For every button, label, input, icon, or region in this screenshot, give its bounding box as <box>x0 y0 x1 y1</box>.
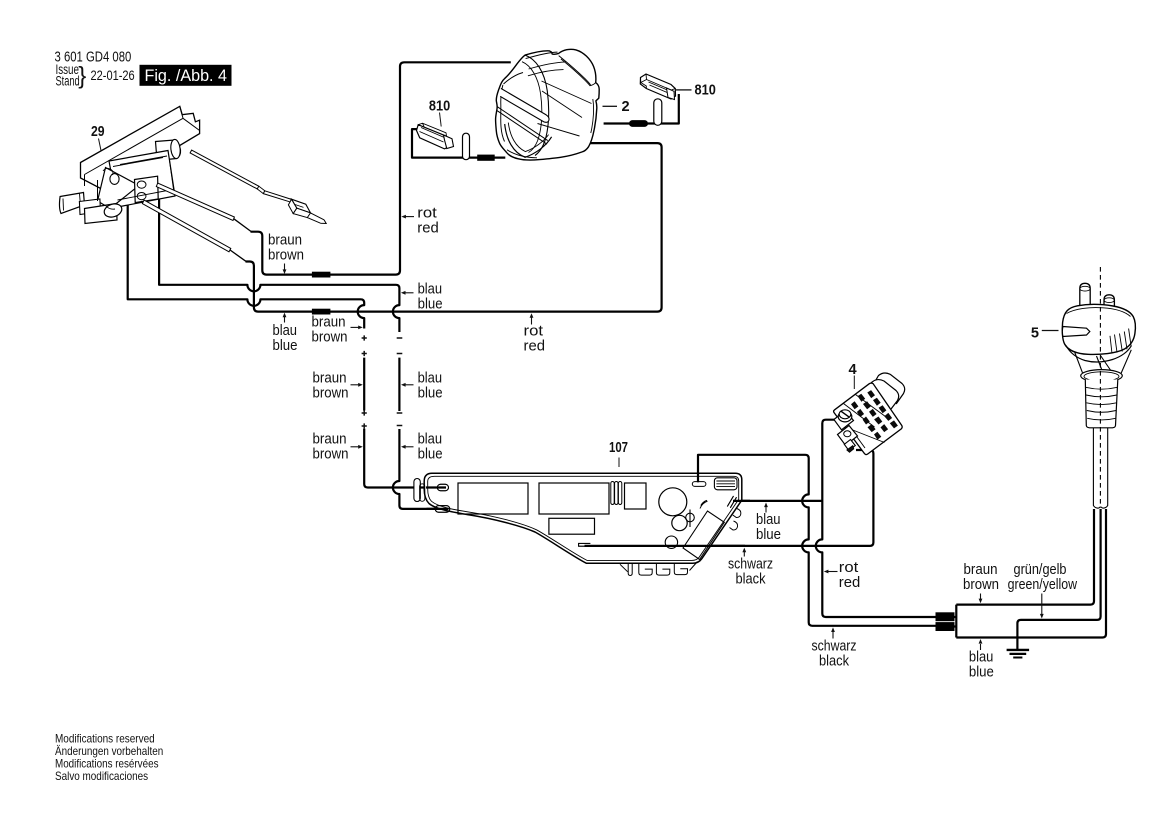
svg-text:810: 810 <box>429 99 450 115</box>
svg-text:107: 107 <box>609 440 628 456</box>
svg-text:brown: brown <box>268 248 304 264</box>
svg-text:rot: rot <box>417 206 437 222</box>
svg-text:brown: brown <box>312 330 348 346</box>
svg-text:braun: braun <box>313 432 347 448</box>
svg-text:brown: brown <box>313 447 349 463</box>
svg-text:braun: braun <box>964 562 998 578</box>
svg-text:braun: braun <box>313 371 347 387</box>
svg-text:braun: braun <box>312 315 346 331</box>
svg-text:black: black <box>819 654 850 670</box>
svg-text:red: red <box>524 339 546 355</box>
svg-text:blau: blau <box>418 282 443 298</box>
svg-text:blue: blue <box>418 297 443 313</box>
svg-text:22-01-26: 22-01-26 <box>91 68 135 83</box>
svg-text:rot: rot <box>839 560 859 576</box>
svg-text:4: 4 <box>849 362 858 378</box>
svg-text:red: red <box>417 221 439 237</box>
svg-text:schwarz: schwarz <box>728 557 773 573</box>
svg-text:blue: blue <box>969 665 994 681</box>
svg-text:5: 5 <box>1031 326 1039 342</box>
svg-text:Salvo modificaciones: Salvo modificaciones <box>55 770 148 783</box>
svg-text:brown: brown <box>313 386 349 402</box>
svg-text:Modifications reserved: Modifications reserved <box>55 733 155 746</box>
svg-text:schwarz: schwarz <box>812 639 857 655</box>
svg-text:rot: rot <box>524 324 544 340</box>
svg-text:Modifications resérvées: Modifications resérvées <box>55 758 159 771</box>
svg-text:blau: blau <box>756 512 781 528</box>
svg-text:blue: blue <box>418 447 443 463</box>
svg-text:blue: blue <box>756 527 781 543</box>
svg-text:blue: blue <box>273 338 298 354</box>
svg-text:}: } <box>78 63 86 90</box>
svg-text:black: black <box>736 572 767 588</box>
svg-text:red: red <box>839 575 861 591</box>
svg-text:Stand: Stand <box>56 74 80 89</box>
svg-text:green/yellow: green/yellow <box>1008 577 1078 593</box>
svg-text:blau: blau <box>273 323 298 339</box>
svg-text:blue: blue <box>418 386 443 402</box>
svg-text:braun: braun <box>268 233 302 249</box>
svg-text:Änderungen vorbehalten: Änderungen vorbehalten <box>55 745 163 758</box>
svg-text:29: 29 <box>91 124 105 140</box>
svg-text:blau: blau <box>418 432 443 448</box>
svg-text:blau: blau <box>969 650 994 666</box>
svg-text:2: 2 <box>622 99 630 115</box>
svg-text:grün/gelb: grün/gelb <box>1014 562 1067 578</box>
svg-text:brown: brown <box>963 577 999 593</box>
svg-text:810: 810 <box>695 83 716 99</box>
svg-text:Fig. /Abb. 4: Fig. /Abb. 4 <box>145 66 228 85</box>
svg-text:blau: blau <box>418 371 443 387</box>
